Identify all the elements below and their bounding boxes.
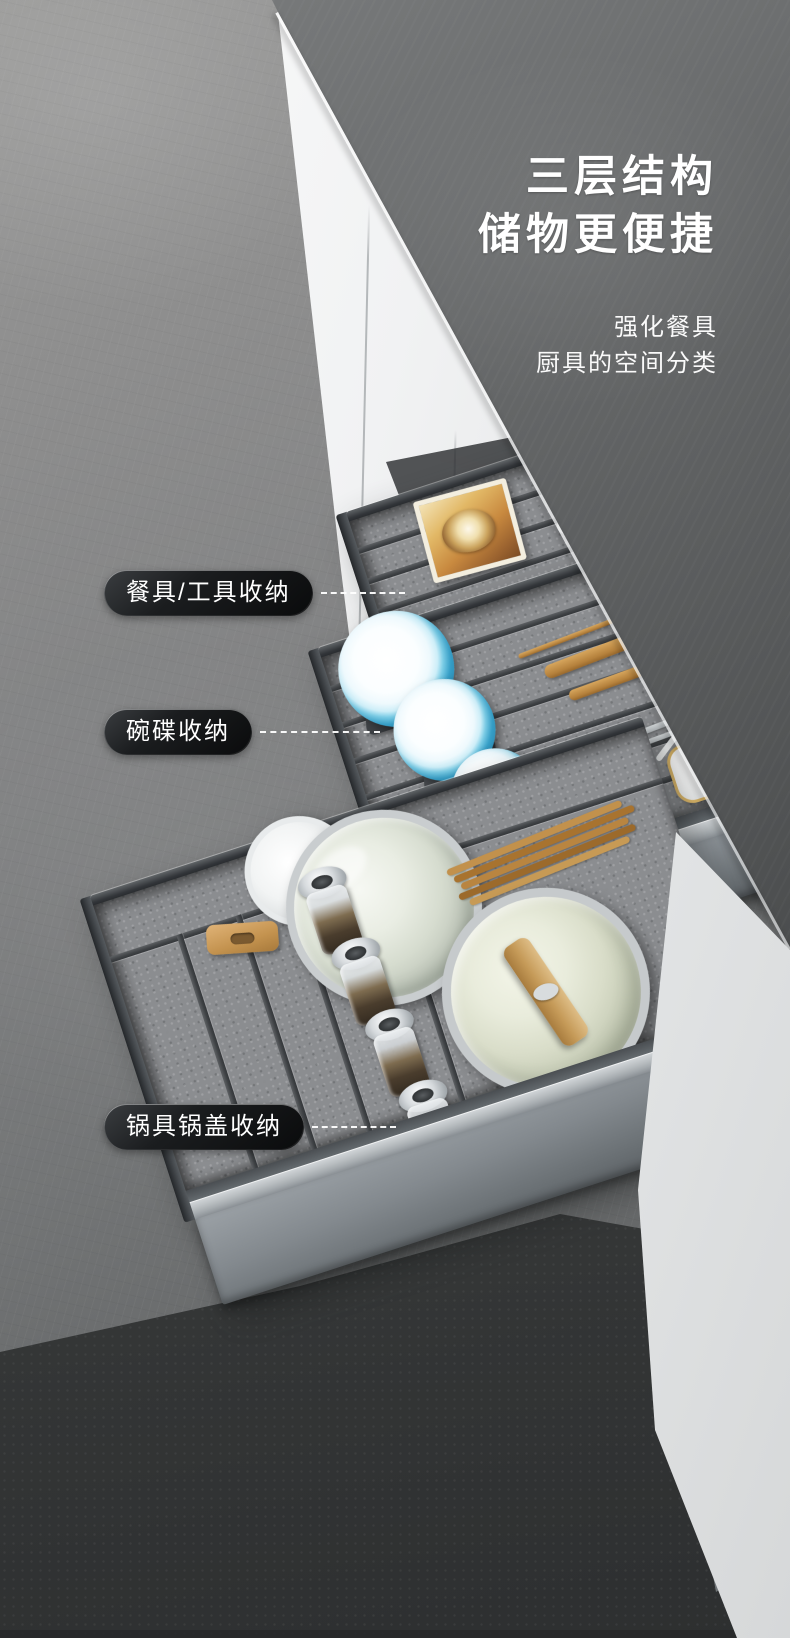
subtitle-line1: 强化餐具 bbox=[478, 310, 718, 346]
subtitle-line2: 厨具的空间分类 bbox=[478, 346, 718, 382]
callout-pill: 餐具/工具收纳 bbox=[104, 570, 313, 616]
callout-dash-line bbox=[260, 731, 380, 733]
headline-block: 三层结构 储物更便捷 强化餐具 厨具的空间分类 bbox=[478, 148, 718, 382]
callout-top-drawer: 餐具/工具收纳 bbox=[104, 570, 405, 616]
callout-pill: 碗碟收纳 bbox=[104, 709, 252, 755]
callout-middle-drawer: 碗碟收纳 bbox=[104, 709, 380, 755]
kitchen-drawer-promo-poster: 三层结构 储物更便捷 强化餐具 厨具的空间分类 餐具/工具收纳 碗碟收纳 锅具锅… bbox=[0, 0, 790, 1638]
floor-edge-shadow bbox=[0, 1630, 737, 1638]
headline-line2: 储物更便捷 bbox=[478, 206, 718, 264]
callout-dash-line bbox=[312, 1126, 396, 1128]
cutting-board-handle bbox=[205, 920, 279, 955]
callout-pill: 锅具锅盖收纳 bbox=[104, 1104, 304, 1150]
headline-line1: 三层结构 bbox=[478, 148, 718, 206]
callout-dash-line bbox=[321, 592, 405, 594]
headline-subtitle: 强化餐具 厨具的空间分类 bbox=[478, 310, 718, 382]
callout-bottom-drawer: 锅具锅盖收纳 bbox=[104, 1104, 396, 1150]
headline-title: 三层结构 储物更便捷 bbox=[478, 148, 718, 264]
